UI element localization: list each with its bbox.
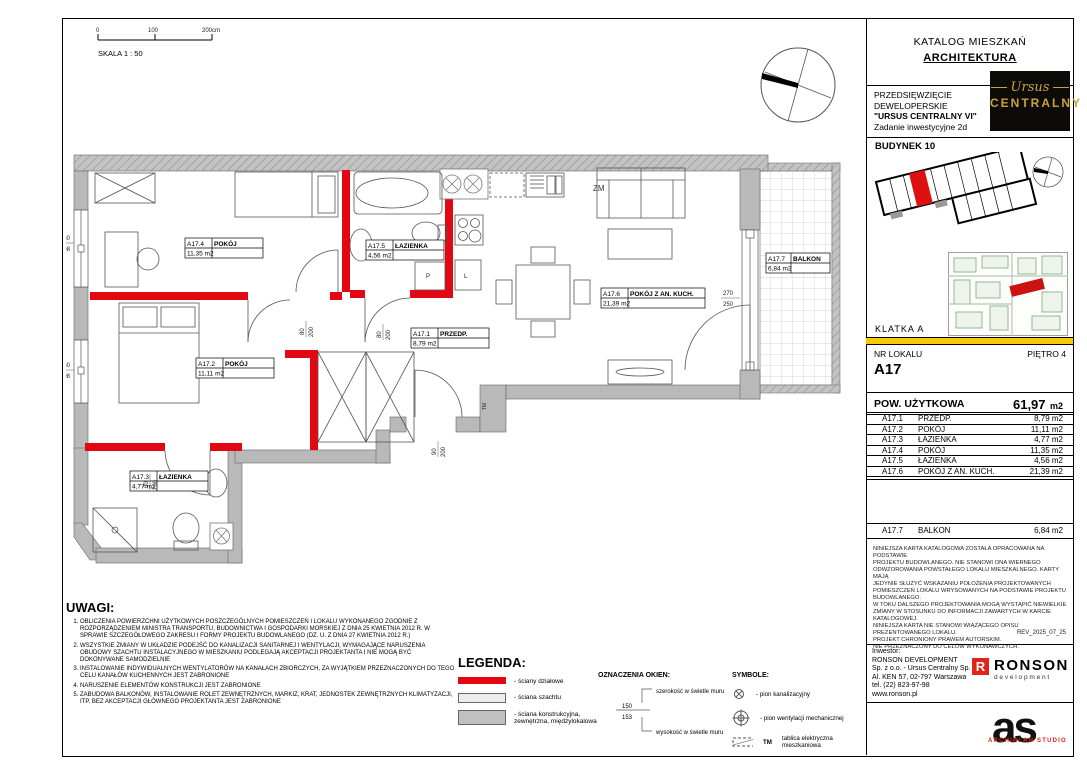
svg-text:8,79 m2: 8,79 m2 [413,341,437,348]
svg-text:80: 80 [300,328,306,335]
svg-text:A17.6: A17.6 [603,291,620,298]
floor-label: PIĘTRO 4 [866,349,1066,359]
label-a17-3: A17.3ŁAZIENKA4,77 m2 [130,471,208,491]
plan-annotations: ZM P L TM 80200 80200 80200 90200 270 25… [66,184,740,490]
balcony-area [760,163,840,393]
svg-text:BALKON: BALKON [793,256,821,263]
window-a174 [74,210,88,287]
label-a17-6: A17.6POKÓJ Z AN. KUCH.21,39 m2 [601,288,705,308]
svg-text:160: 160 [66,363,71,369]
label-a17-4: A17.4POKÓJ11,35 m2 [185,238,263,258]
svg-text:270: 270 [723,291,734,297]
label-a17-5: A17.5ŁAZIENKA4,56 m2 [366,240,444,260]
yellow-bar [866,337,1073,345]
table-row: A17.4POKÓJ11,35 m2 [866,446,1073,456]
ronson-logo: R RONSON development [972,658,1069,681]
scale-tick-0: 0 [96,28,100,34]
svg-text:POKÓJ Z AN. KUCH.: POKÓJ Z AN. KUCH. [630,289,694,298]
structural-walls [74,155,768,563]
table-row: A17.3ŁAZIENKA4,77 m2 [866,435,1073,445]
catalog-title: KATALOG MIESZKAŃ [867,36,1073,48]
legend-shaft-swatch [458,693,506,703]
label-a17-1: A17.1PRZEDP.8,79 m2 [411,328,489,348]
catalog-header: KATALOG MIESZKAŃ ARCHITEKTURA [867,36,1073,64]
scale-bar: 0 100 200cm SKALA 1 : 50 [90,24,250,64]
archiplan-label: ARCHIPLAN STUDIO [988,738,1067,744]
svg-text:200: 200 [153,479,159,490]
svg-text:A17.3: A17.3 [132,474,149,481]
svg-text:198: 198 [66,247,71,253]
svg-text:198: 198 [66,374,71,380]
floor-plan: A17.4POKÓJ11,35 m2 A17.5ŁAZIENKA4,56 m2 … [66,145,856,605]
furniture [93,168,685,552]
klatka-label: KLATKA A [875,324,924,334]
dim-door-a174: 80200 [300,321,315,337]
tm-label: TM [482,403,488,410]
svg-text:ŁAZIENKA: ŁAZIENKA [159,474,192,481]
svg-text:150: 150 [622,704,633,710]
revision-label: REV_2025_07_25 [866,630,1066,636]
svg-text:4,56 m2: 4,56 m2 [368,253,392,260]
svg-text:160: 160 [66,236,71,242]
dim-entrance: 90200 [432,441,447,457]
investor-block: Inwestor: RONSON DEVELOPMENTSp. z o.o. -… [872,648,982,700]
svg-text:80: 80 [377,331,383,338]
svg-text:11,35 m2: 11,35 m2 [187,251,214,258]
ursus-centralny-logo: Ursus CENTRALNY [990,71,1070,131]
svg-text:POKÓJ: POKÓJ [214,239,237,248]
legend-partition-swatch [458,677,506,684]
mech-vent-riser-icon [732,709,750,727]
svg-text:A17.7: A17.7 [768,256,785,263]
svg-text:11,11 m2: 11,11 m2 [198,371,225,378]
uwagi-notes: UWAGI: OBLICZENIA POWIERZCHNI UŻYTKOWYCH… [66,600,456,708]
label-a17-2: A17.2POKÓJ11,11 m2 [196,358,274,378]
dim-door-a175: 80200 [377,324,392,340]
svg-text:wysokość w świetle muru: wysokość w świetle muru [655,730,723,736]
svg-text:A17.1: A17.1 [413,331,430,338]
table-row: A17.2POKÓJ11,11 m2 [866,425,1073,435]
rooms-table: A17.1PRZEDP.8,79 m2 A17.2POKÓJ11,11 m2 A… [866,414,1073,480]
svg-text:POKÓJ: POKÓJ [225,359,248,368]
svg-text:80: 80 [144,481,150,488]
table-row: A17.6POKÓJ Z AN. KUCH.21,39 m2 [866,467,1073,477]
building-keyplan [868,152,1068,257]
svg-text:200: 200 [441,446,447,457]
sewage-riser-icon [732,687,746,701]
catalog-subtitle: ARCHITEKTURA [867,52,1073,64]
ronson-r-icon: R [972,658,989,675]
cabinet-p-label: P [426,274,430,280]
table-row: A17.5ŁAZIENKA4,56 m2 [866,456,1073,466]
svg-text:ŁAZIENKA: ŁAZIENKA [395,243,428,250]
dishwasher-label: ZM [593,184,605,193]
svg-text:21,39 m2: 21,39 m2 [603,301,630,308]
svg-text:6,84 m2: 6,84 m2 [768,266,792,273]
svg-text:90: 90 [432,448,438,455]
svg-text:szerokość w świetle muru: szerokość w świetle muru [656,689,724,695]
legend-title: LEGENDA: [458,655,623,670]
svg-text:PRZEDP.: PRZEDP. [440,331,468,338]
svg-text:153: 153 [622,715,633,721]
north-compass-icon [752,42,852,132]
symbols-key: SYMBOLE: - pion kanalizacyjny - pion wen… [732,672,862,749]
svg-text:A17.2: A17.2 [198,361,215,368]
electric-panel-icon [732,737,753,747]
svg-text:A17.4: A17.4 [187,241,204,248]
site-map [948,252,1068,336]
scale-tick-100: 100 [148,28,159,34]
table-row: A17.1PRZEDP.8,79 m2 [866,414,1073,424]
svg-text:200: 200 [309,326,315,337]
unit-number: A17 [874,361,902,378]
scale-label: SKALA 1 : 50 [98,49,143,58]
uwagi-title: UWAGI: [66,600,456,615]
svg-text:250: 250 [723,302,734,308]
dim-window-2: 160 198 [66,363,74,380]
fridge-label: L [464,274,468,280]
svg-text:A17.5: A17.5 [368,243,385,250]
window-a172 [74,340,88,403]
building-name: BUDYNEK 10 [875,141,935,152]
svg-text:200: 200 [386,329,392,340]
partition-walls [85,170,453,451]
symbols-title: SYMBOLE: [732,672,862,679]
legend-structural-swatch [458,710,506,725]
dim-window-1: 160 198 [66,236,74,253]
label-a17-7: A17.7BALKON6,84 m2 [766,253,830,273]
balcony-row: A17.7BALKON6,84 m2 [866,526,1073,536]
scale-tick-200: 200cm [202,28,220,34]
dim-balcony-door: 270 250 [721,291,740,308]
project-block: PRZEDSIĘWZIĘCIE DEWELOPERSKIE "URSUS CEN… [874,90,989,132]
